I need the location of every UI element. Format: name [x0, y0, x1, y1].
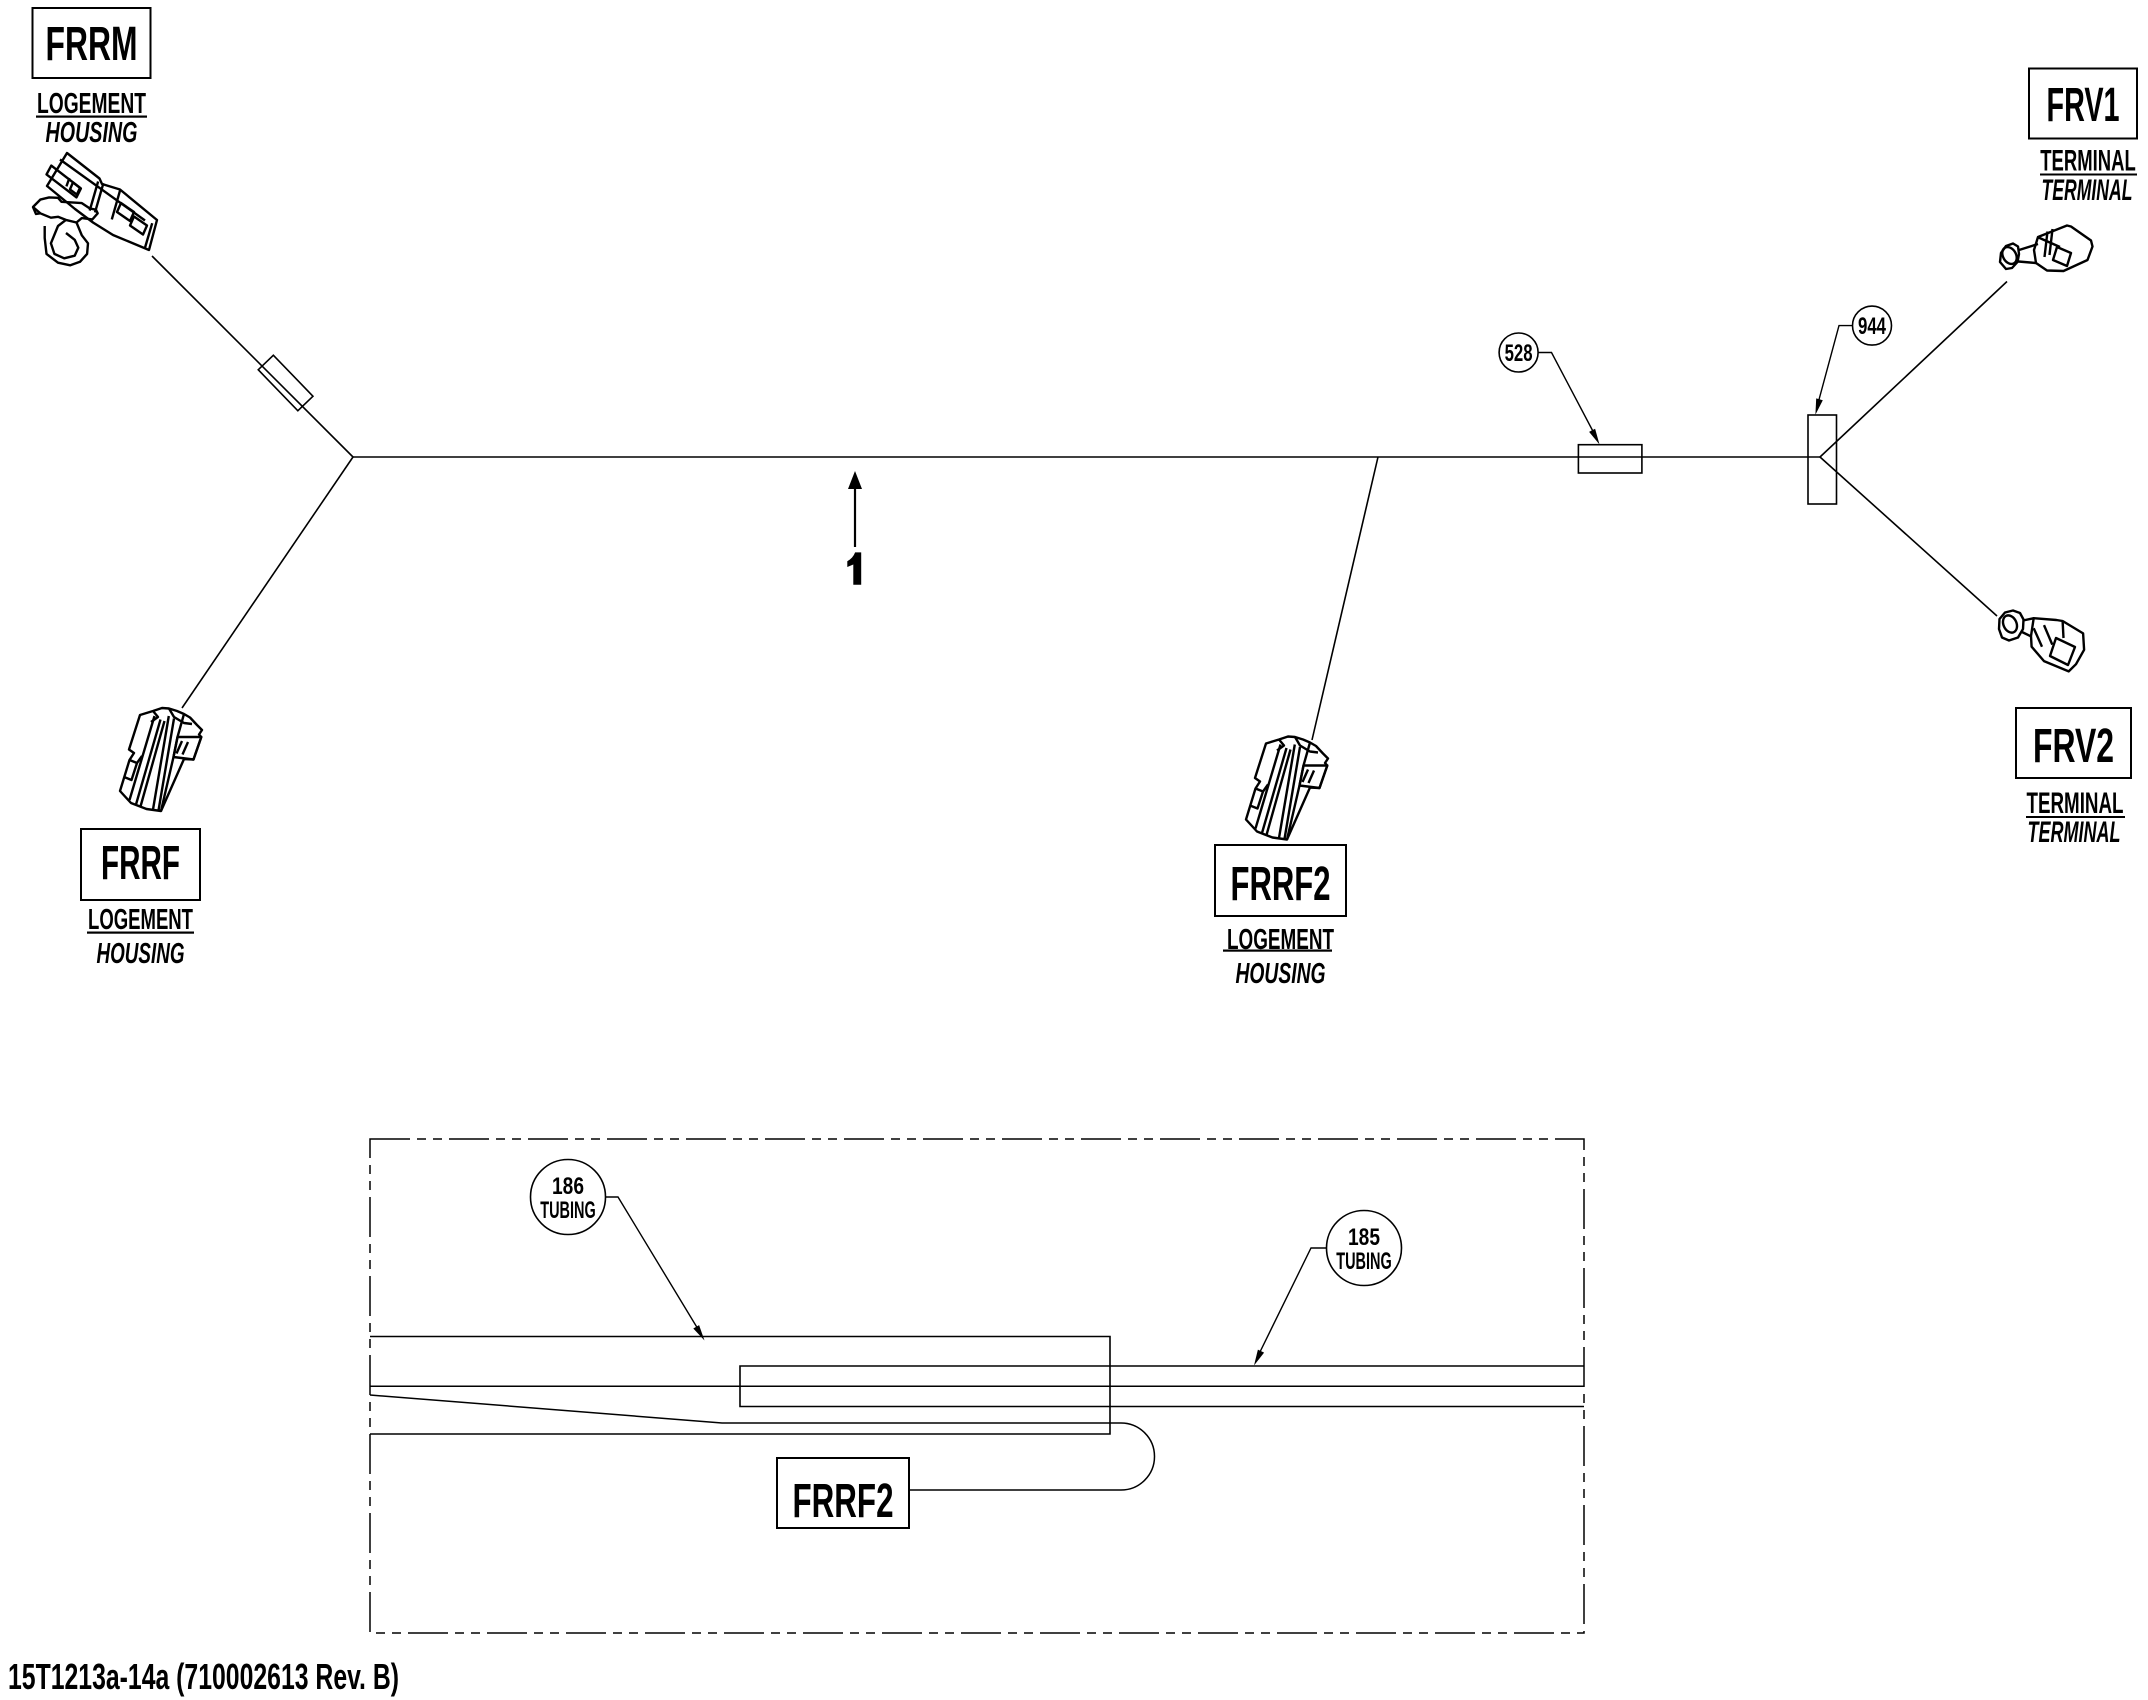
svg-text:FRRF2: FRRF2	[1231, 858, 1331, 911]
svg-text:15T1213a-14a (710002613 Rev. B: 15T1213a-14a (710002613 Rev. B)	[8, 1656, 399, 1697]
svg-text:HOUSING: HOUSING	[97, 938, 185, 970]
svg-text:944: 944	[1858, 313, 1886, 340]
svg-text:FRV2: FRV2	[2033, 720, 2114, 773]
svg-text:FRV1: FRV1	[2047, 79, 2120, 132]
svg-text:528: 528	[1505, 340, 1533, 367]
svg-text:LOGEMENT: LOGEMENT	[37, 88, 146, 120]
svg-text:LOGEMENT: LOGEMENT	[88, 904, 193, 936]
svg-text:HOUSING: HOUSING	[1236, 958, 1326, 990]
svg-text:TERMINAL: TERMINAL	[2042, 174, 2133, 207]
svg-text:TUBING: TUBING	[1336, 1248, 1392, 1275]
svg-text:FRRF: FRRF	[101, 837, 180, 890]
svg-text:TERMINAL: TERMINAL	[2040, 145, 2136, 178]
svg-text:HOUSING: HOUSING	[46, 117, 138, 149]
svg-text:FRRF2: FRRF2	[793, 1475, 894, 1528]
svg-text:FRRM: FRRM	[46, 18, 138, 71]
svg-text:185: 185	[1348, 1224, 1380, 1251]
svg-text:TUBING: TUBING	[540, 1197, 596, 1224]
svg-text:186: 186	[552, 1173, 584, 1200]
svg-text:TERMINAL: TERMINAL	[2028, 816, 2121, 849]
